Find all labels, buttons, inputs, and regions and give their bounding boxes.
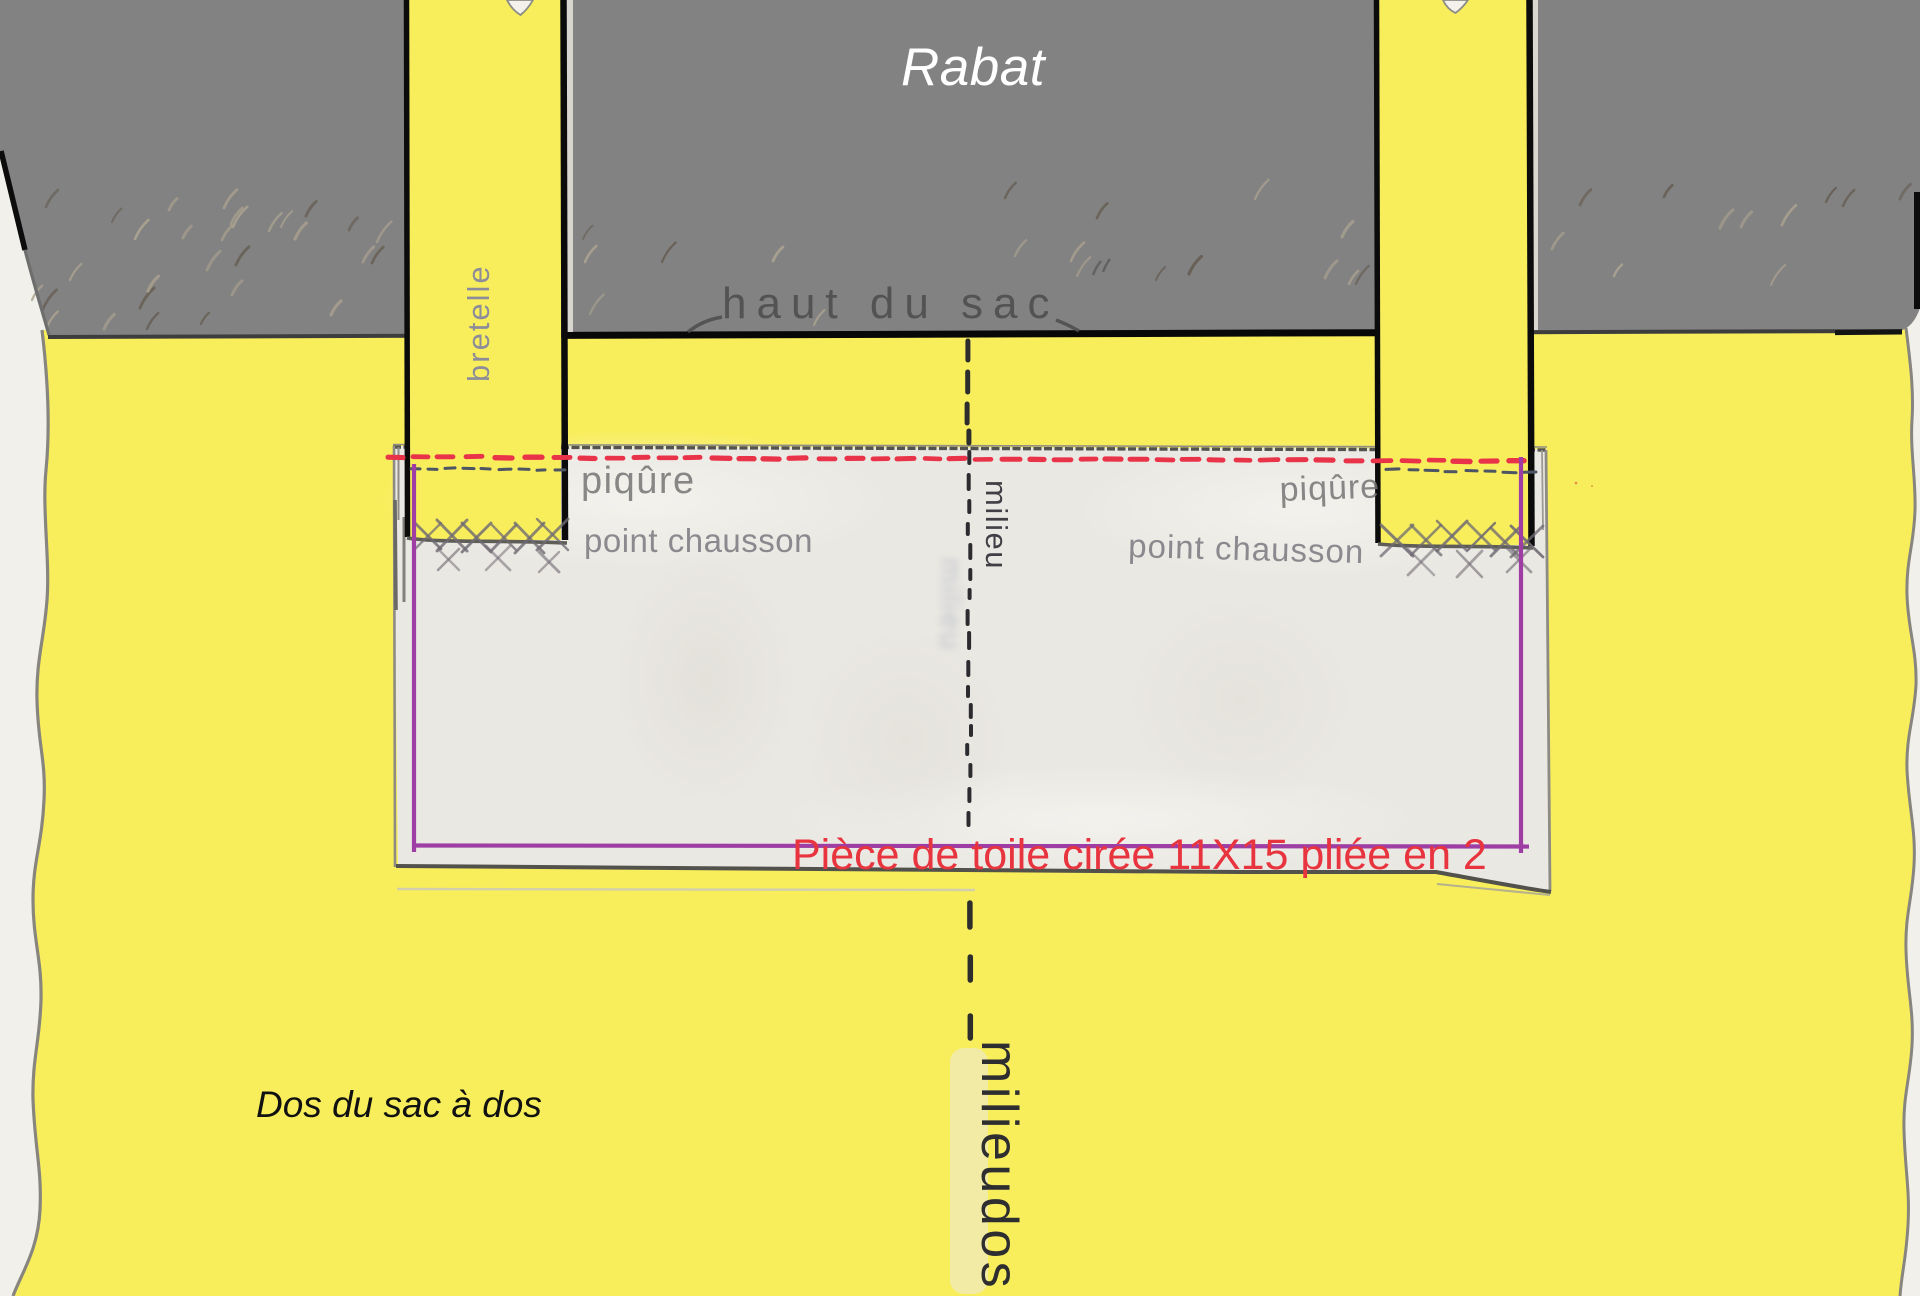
svg-text:point chausson: point chausson bbox=[584, 522, 813, 559]
svg-text:point chausson: point chausson bbox=[1128, 527, 1365, 570]
svg-text:piqûre: piqûre bbox=[1279, 468, 1381, 509]
svg-text:piqûre: piqûre bbox=[581, 460, 696, 502]
svg-text:Rabat: Rabat bbox=[901, 38, 1047, 97]
svg-text:milieu: milieu bbox=[979, 480, 1014, 570]
svg-text:haut du sac: haut du sac bbox=[722, 279, 1060, 328]
svg-text:bretelle: bretelle bbox=[461, 264, 496, 382]
svg-text:milieudos: milieudos bbox=[970, 1040, 1028, 1291]
svg-text:Pièce de toile cirée 11X15 pli: Pièce de toile cirée 11X15 pliée en 2 bbox=[792, 831, 1487, 879]
svg-text:milieu: milieu bbox=[934, 558, 969, 651]
svg-text:Dos du sac à dos: Dos du sac à dos bbox=[256, 1084, 542, 1125]
